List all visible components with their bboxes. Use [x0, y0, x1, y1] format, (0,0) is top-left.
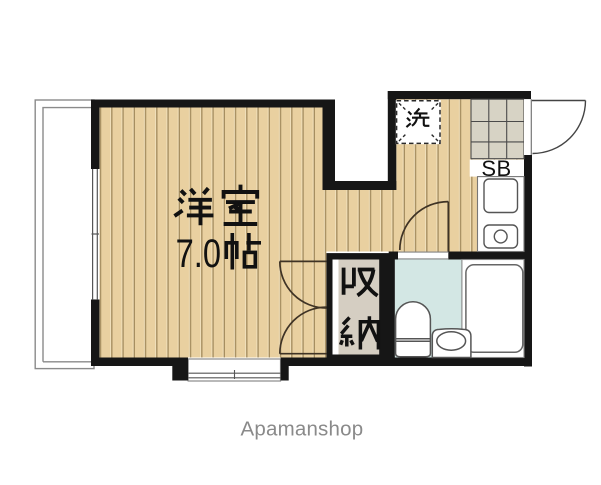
svg-text:7.0: 7.0 — [176, 232, 221, 276]
svg-text:Apamanshop: Apamanshop — [241, 417, 364, 440]
